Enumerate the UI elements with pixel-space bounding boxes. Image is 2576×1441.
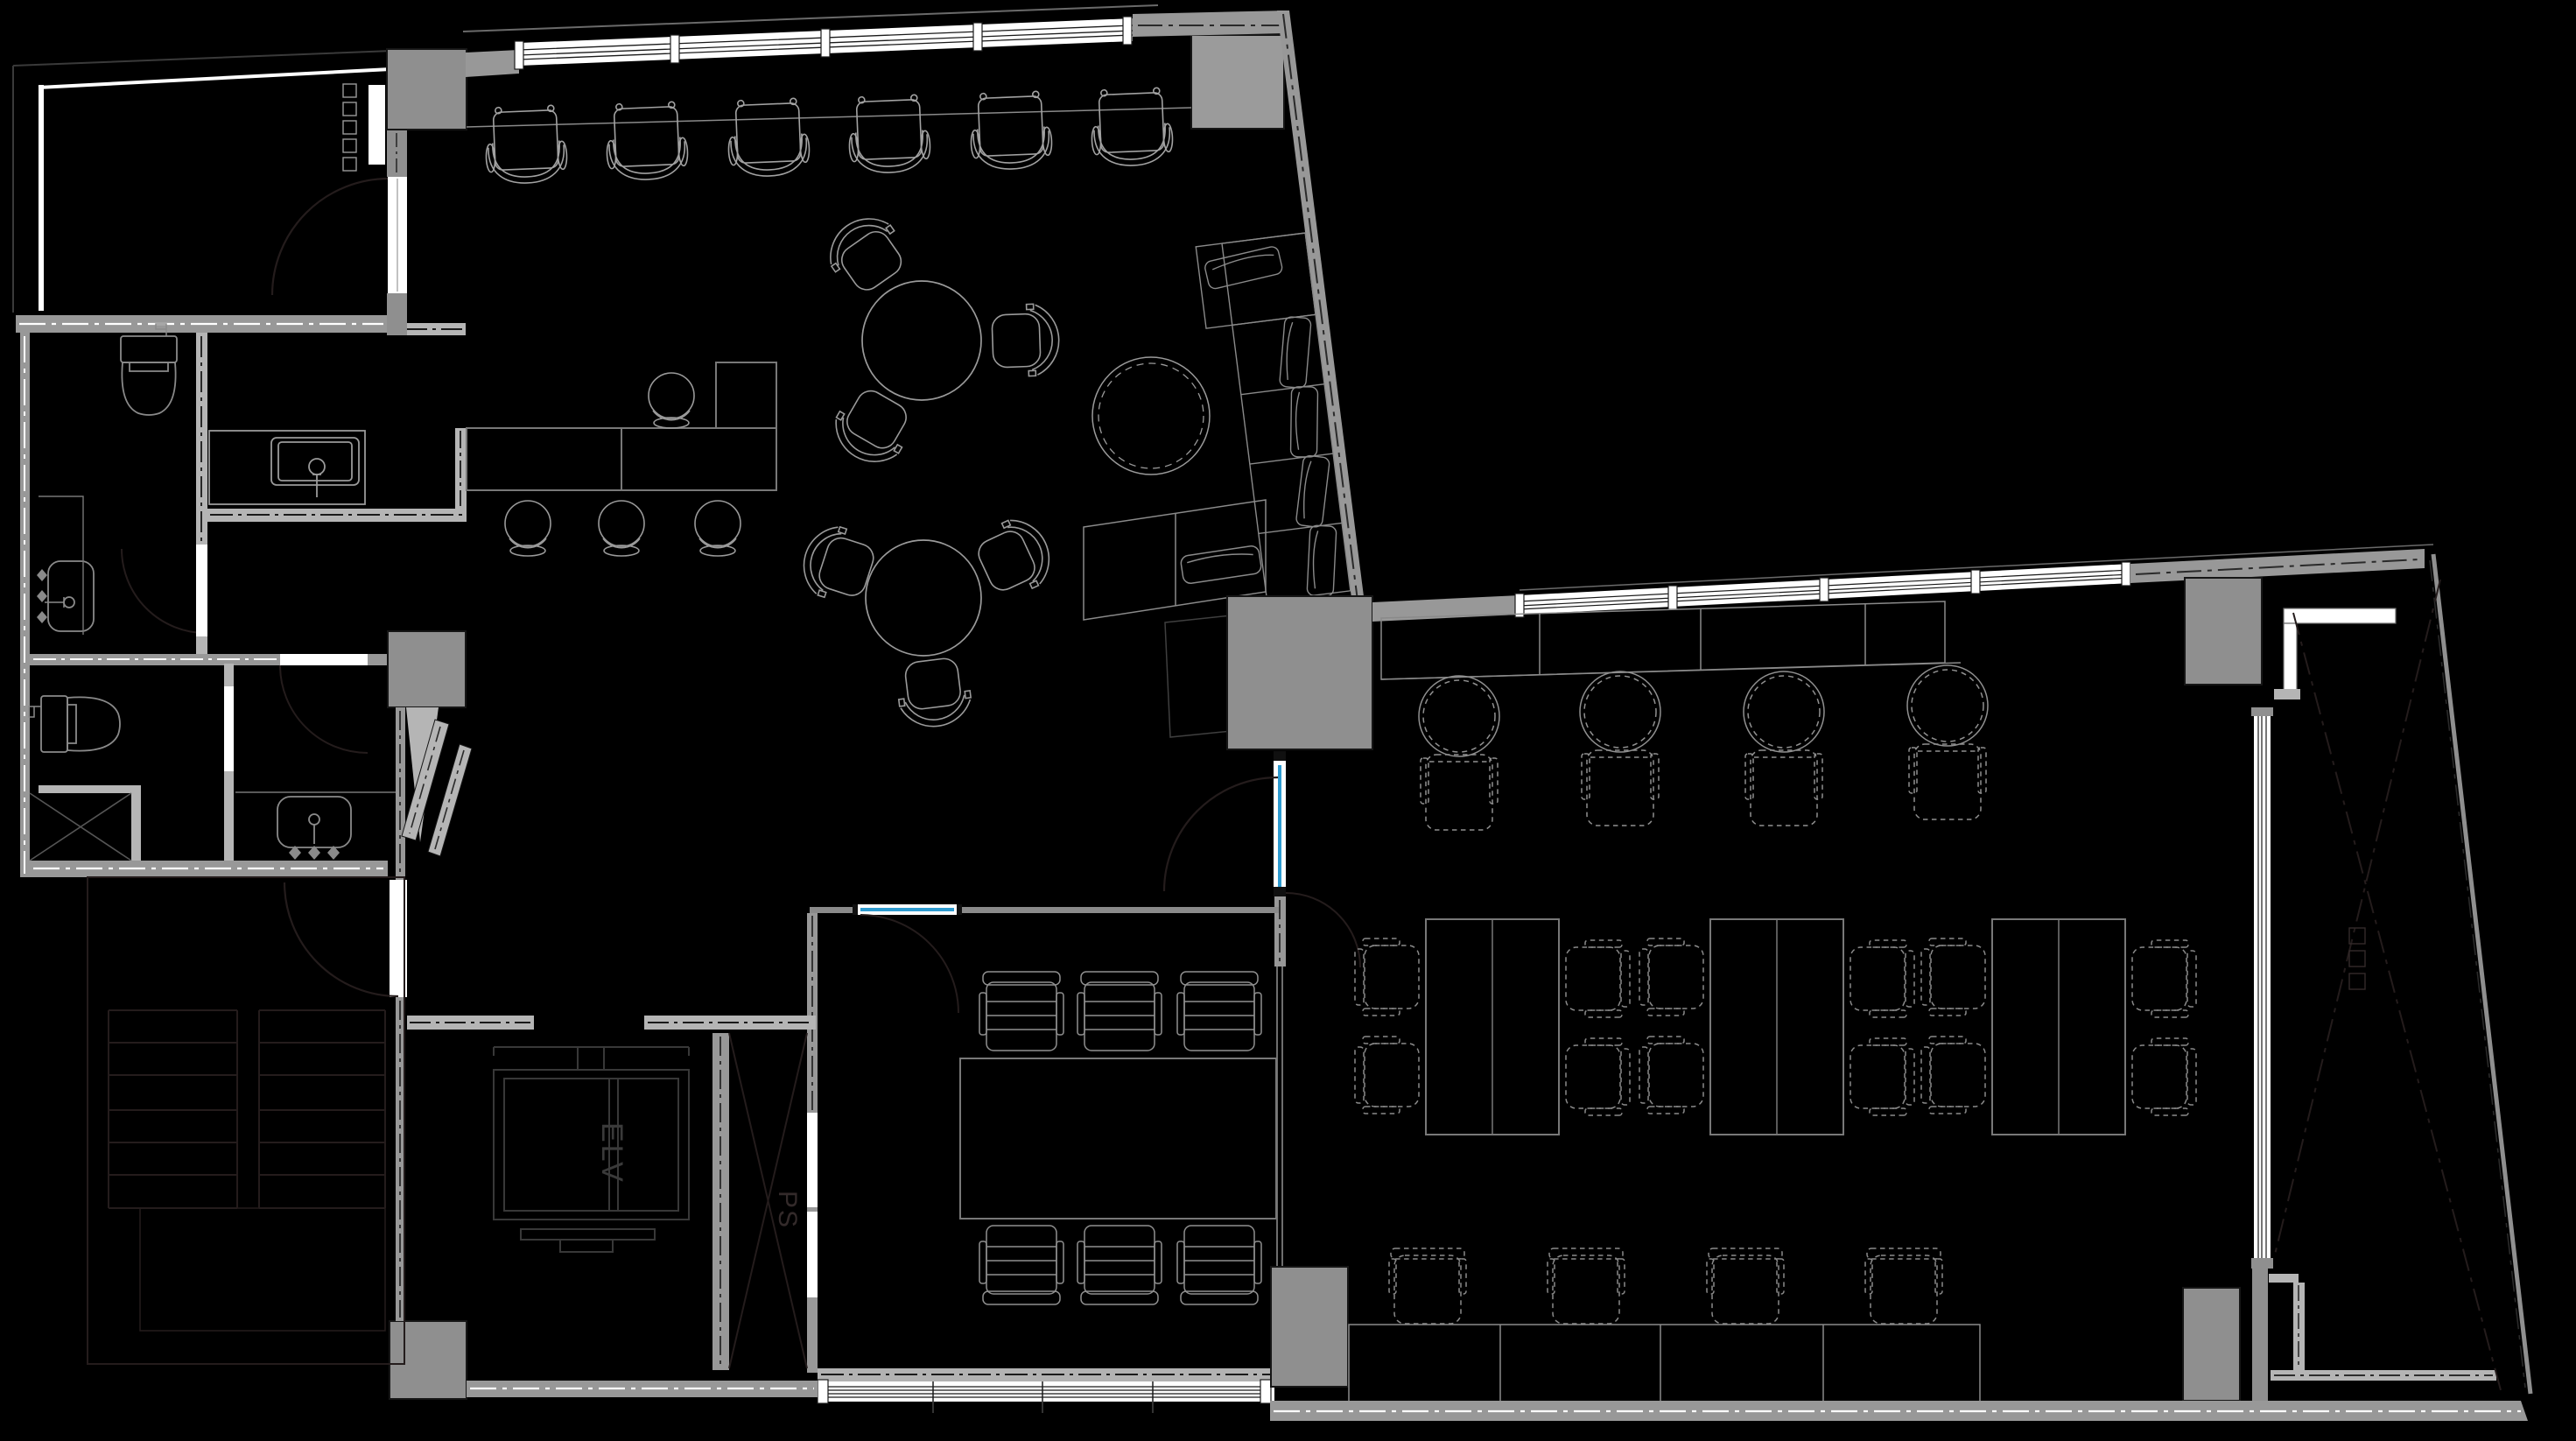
svg-text:PS: PS (773, 1191, 802, 1229)
svg-text:ELV: ELV (595, 1122, 628, 1184)
